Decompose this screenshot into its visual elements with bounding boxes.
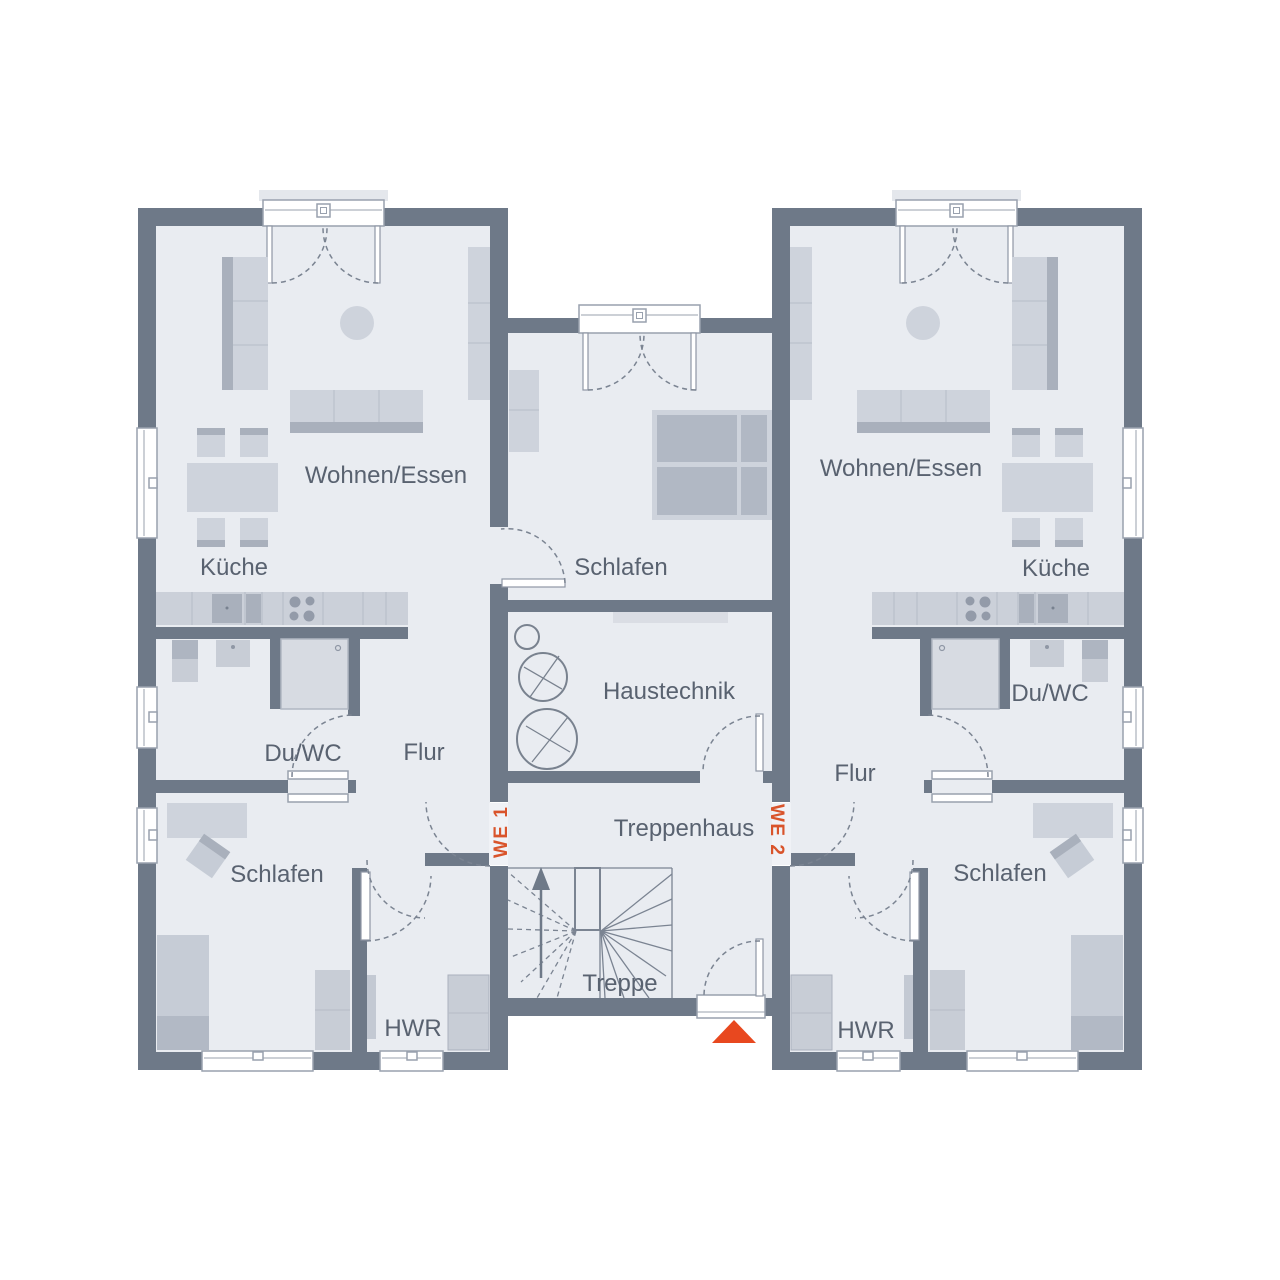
room-label-hall-we1: Flur	[403, 739, 444, 766]
room-label-technical: Haustechnik	[603, 678, 736, 705]
wc	[216, 640, 250, 667]
room-label-hall-we2: Flur	[834, 760, 875, 787]
room-label-stair: Treppe	[582, 970, 657, 997]
washbasin	[172, 640, 198, 659]
room-label-bath-we2: Du/WC	[1011, 680, 1088, 707]
room-label-living-we1: Wohnen/Essen	[305, 462, 467, 489]
room-label-bedroom-center: Schlafen	[574, 554, 667, 581]
room-label-living-we2: Wohnen/Essen	[820, 455, 982, 482]
room-label-utility-we1: HWR	[384, 1015, 441, 1042]
entrance-marker-icon	[712, 1020, 756, 1043]
stair-void	[575, 868, 600, 930]
room-label-kitchen-we2: Küche	[1022, 555, 1090, 582]
center-section-geometry	[490, 305, 772, 1043]
tv-board	[468, 247, 490, 400]
center-bedroom-door-leaf	[502, 579, 565, 587]
room-label-bath-we1: Du/WC	[264, 740, 341, 767]
room-label-bedroom-we1: Schlafen	[230, 861, 323, 888]
kitchen-counter	[156, 592, 408, 625]
technical-door-leaf	[756, 714, 763, 771]
shelf	[367, 975, 376, 1039]
unit-tag-we2: WE 2	[766, 804, 787, 856]
unit-we2-geometry	[771, 190, 1143, 1071]
room-label-kitchen-we1: Küche	[200, 554, 268, 581]
dining-table	[187, 463, 278, 512]
floor-plan-page: Wohnen/Essen Küche Du/WC Flur Schlafen H…	[0, 0, 1280, 1280]
dresser	[167, 803, 247, 838]
unit-we1-geometry	[137, 190, 509, 1071]
round-rug	[340, 306, 374, 340]
room-label-utility-we2: HWR	[837, 1017, 894, 1044]
room-label-bedroom-we2: Schlafen	[953, 860, 1046, 887]
wardrobe	[509, 370, 539, 452]
room-label-stair-hall: Treppenhaus	[614, 815, 755, 842]
unit-tag-we1: WE 1	[491, 806, 512, 858]
shelf	[613, 612, 728, 623]
tank-medium	[519, 653, 567, 701]
floor-plan: Wohnen/Essen Küche Du/WC Flur Schlafen H…	[0, 0, 1280, 1280]
tank-small	[515, 625, 539, 649]
bedroom-door-leaf	[361, 872, 370, 940]
shower	[281, 639, 348, 709]
appliance	[246, 594, 261, 623]
sliding-door	[288, 771, 348, 779]
entrance-door-leaf	[756, 939, 763, 996]
bed	[157, 935, 209, 1016]
